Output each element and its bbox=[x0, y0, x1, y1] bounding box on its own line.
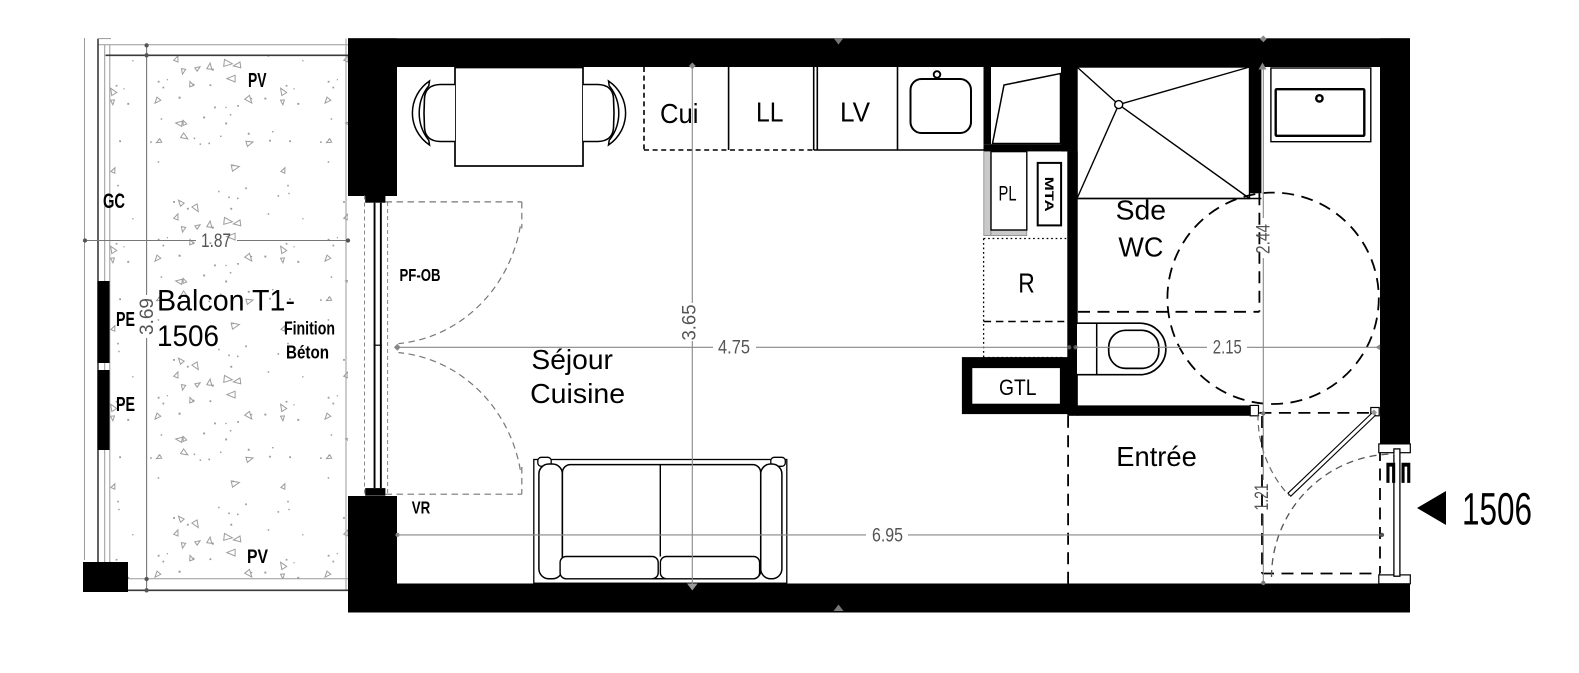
svg-text:WC: WC bbox=[1118, 231, 1163, 262]
svg-text:GC: GC bbox=[103, 189, 125, 213]
svg-text:VR: VR bbox=[412, 497, 431, 517]
svg-text:PV: PV bbox=[247, 547, 268, 568]
svg-text:3.65: 3.65 bbox=[680, 305, 701, 341]
svg-text:PL: PL bbox=[999, 180, 1017, 205]
svg-text:Béton: Béton bbox=[286, 341, 329, 362]
svg-text:MTA: MTA bbox=[1042, 177, 1054, 212]
svg-text:1.87: 1.87 bbox=[201, 231, 231, 252]
svg-text:1506: 1506 bbox=[1462, 484, 1532, 535]
svg-text:Finition: Finition bbox=[284, 318, 335, 339]
svg-text:PE: PE bbox=[116, 309, 135, 331]
svg-text:R: R bbox=[1018, 267, 1035, 298]
svg-text:PE: PE bbox=[116, 394, 135, 416]
svg-text:LL: LL bbox=[756, 97, 784, 128]
svg-text:PV: PV bbox=[248, 70, 267, 92]
svg-text:6.95: 6.95 bbox=[872, 525, 903, 546]
svg-text:1.21: 1.21 bbox=[1252, 484, 1273, 511]
svg-text:4.75: 4.75 bbox=[718, 337, 750, 358]
svg-text:3.69: 3.69 bbox=[137, 298, 158, 335]
svg-text:2.44: 2.44 bbox=[1254, 224, 1275, 254]
svg-text:Balcon T1-: Balcon T1- bbox=[157, 285, 295, 318]
svg-text:PF-OB: PF-OB bbox=[400, 265, 441, 285]
svg-text:1506: 1506 bbox=[157, 320, 219, 353]
svg-text:Entrée: Entrée bbox=[1116, 441, 1197, 472]
svg-text:Cuisine: Cuisine bbox=[530, 378, 625, 409]
svg-text:Sde: Sde bbox=[1116, 195, 1167, 226]
svg-text:LV: LV bbox=[840, 97, 871, 128]
svg-text:Séjour: Séjour bbox=[531, 344, 613, 375]
svg-text:GTL: GTL bbox=[999, 375, 1037, 400]
svg-text:2.15: 2.15 bbox=[1213, 337, 1242, 358]
